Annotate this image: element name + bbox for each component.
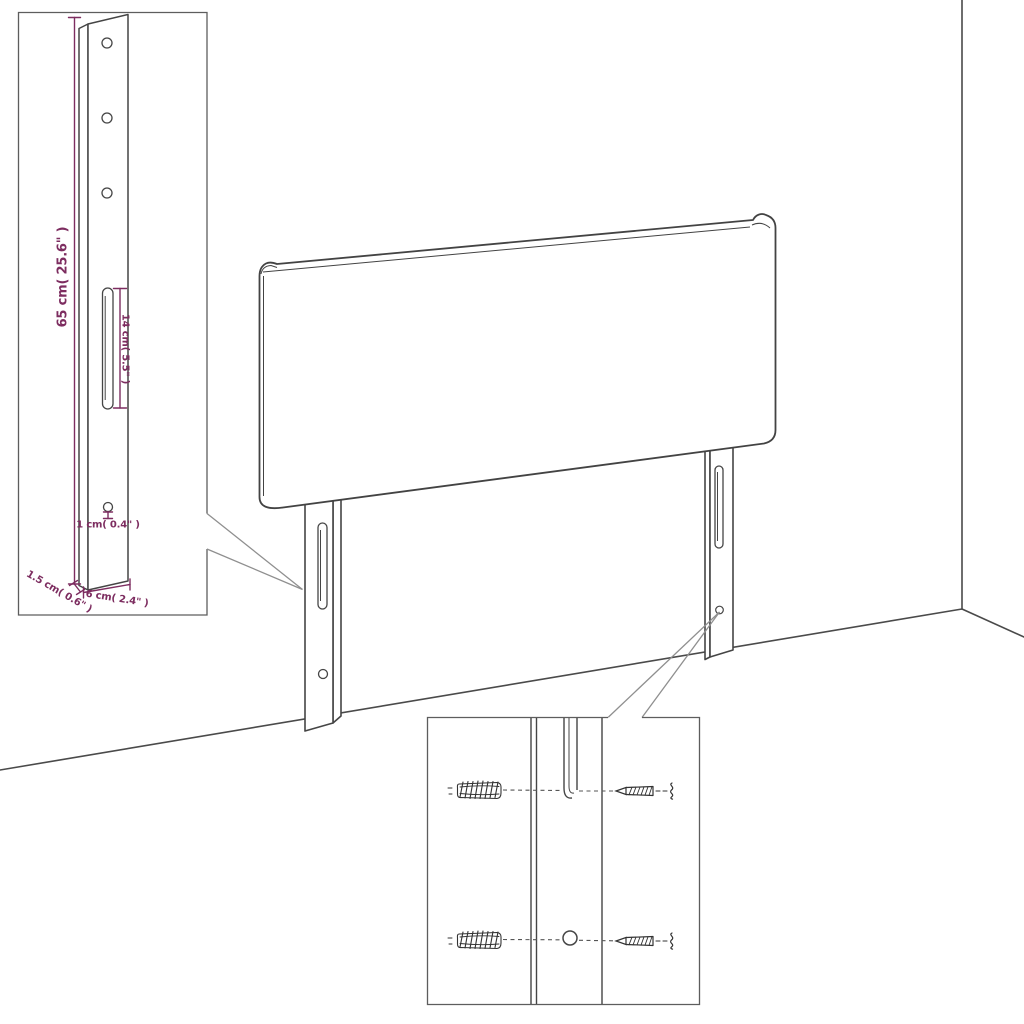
leg-left-slot (318, 523, 327, 609)
bracket-hole-1 (102, 38, 112, 48)
dimension-label-slot-length: 14 cm( 5.5" ) (120, 314, 131, 384)
headboard-panel (260, 214, 776, 508)
bracket-side-face (79, 24, 88, 590)
headboard-dimension-diagram (0, 0, 1024, 1024)
leg-right-slot (715, 466, 723, 548)
inset-hardware-detail (428, 718, 700, 1005)
callout-lines-leg (207, 514, 303, 590)
bracket-hole-2 (102, 113, 112, 123)
diagram-canvas: 65 cm( 25.6" ) 14 cm( 5.5" ) 1 cm( 0.4" … (0, 0, 1024, 1024)
leg-left-hole (319, 670, 328, 679)
bracket-hole-3 (102, 188, 112, 198)
bracket-slot (103, 288, 114, 409)
dimension-label-height: 65 cm( 25.6" ) (56, 227, 71, 328)
headboard-leg-left (305, 493, 341, 731)
bracket-small-hole (104, 503, 113, 512)
floor-line-right (962, 609, 1024, 637)
leg-left-side-face (333, 493, 341, 723)
headboard-panel-outline (260, 214, 776, 508)
dimension-label-hole-diameter: 1 cm( 0.4" ) (76, 520, 139, 531)
